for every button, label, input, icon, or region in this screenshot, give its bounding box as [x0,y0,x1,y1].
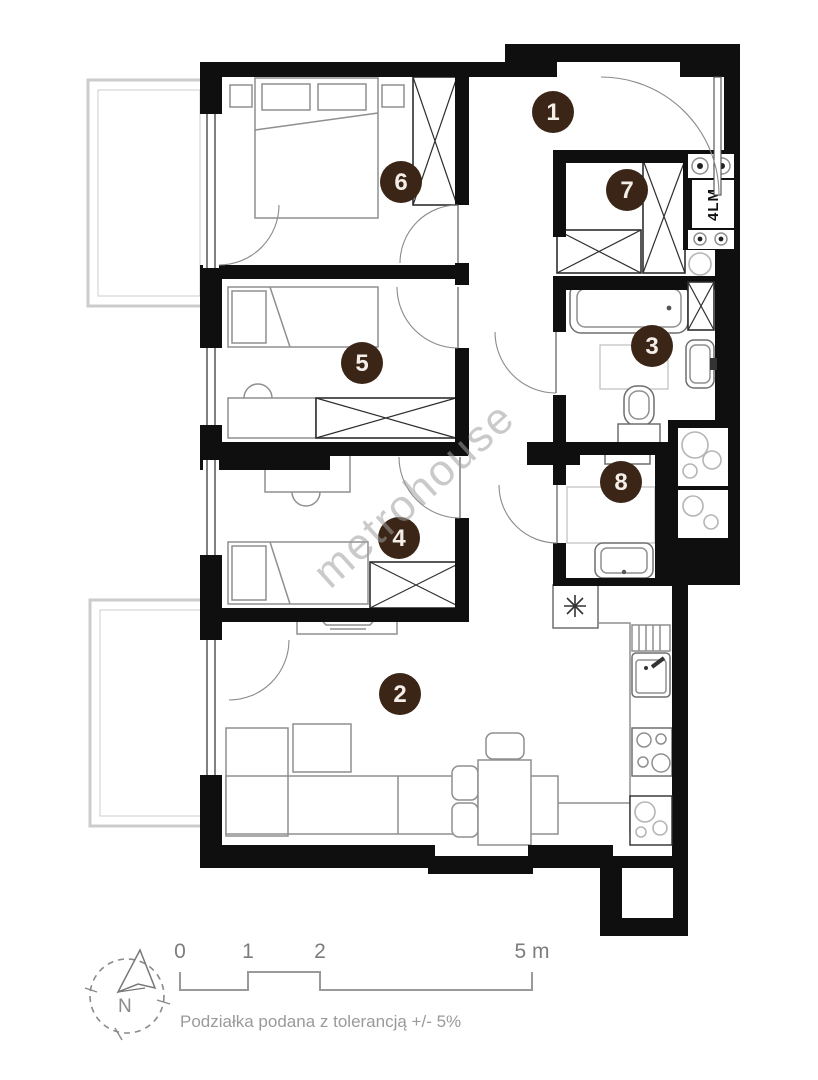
compass: N [85,950,170,1040]
room-badge-2: 2 [379,673,421,715]
livingroom2-furniture [226,610,558,845]
balcony-top-left [88,80,210,306]
room-badge-5: 5 [341,342,383,384]
bathroom3-fixtures [570,283,688,444]
fridge-snowflake-icon [564,595,586,617]
svg-text:1: 1 [546,99,559,126]
pipe-shaft-middle [678,428,728,538]
room-badge-3: 3 [631,325,673,367]
bathroom-niche [686,253,717,388]
elevator-shaft: 4LM [688,154,734,249]
svg-text:7: 7 [620,177,633,204]
svg-text:2: 2 [393,681,406,708]
svg-text:6: 6 [394,169,407,196]
scale-tick-0: 0 [174,940,186,963]
room-badge-8: 8 [600,461,642,503]
svg-text:8: 8 [614,469,627,496]
room-badge-1: 1 [532,91,574,133]
bedroom6-furniture [230,77,457,218]
svg-text:3: 3 [645,333,658,360]
room-badge-6: 6 [380,161,422,203]
scale-tick-5m: 5 m [514,940,549,963]
north-label: N [118,996,132,1017]
svg-text:5: 5 [355,350,368,377]
tolerance-note: Podziałka podana z tolerancją +/- 5% [180,1012,461,1031]
floorplan-page: 4LM [0,0,818,1080]
floor-plan: 4LM [0,0,818,1080]
scale-bar: 0 1 2 5 m Podziałka podana z tolerancją … [174,940,549,1031]
scale-tick-2: 2 [314,940,326,963]
north-arrow-icon [118,950,155,992]
balcony-bottom-left [90,600,215,826]
scale-tick-1: 1 [242,940,254,963]
pipe-shaft-kitchen [630,796,672,845]
room-badge-7: 7 [606,169,648,211]
